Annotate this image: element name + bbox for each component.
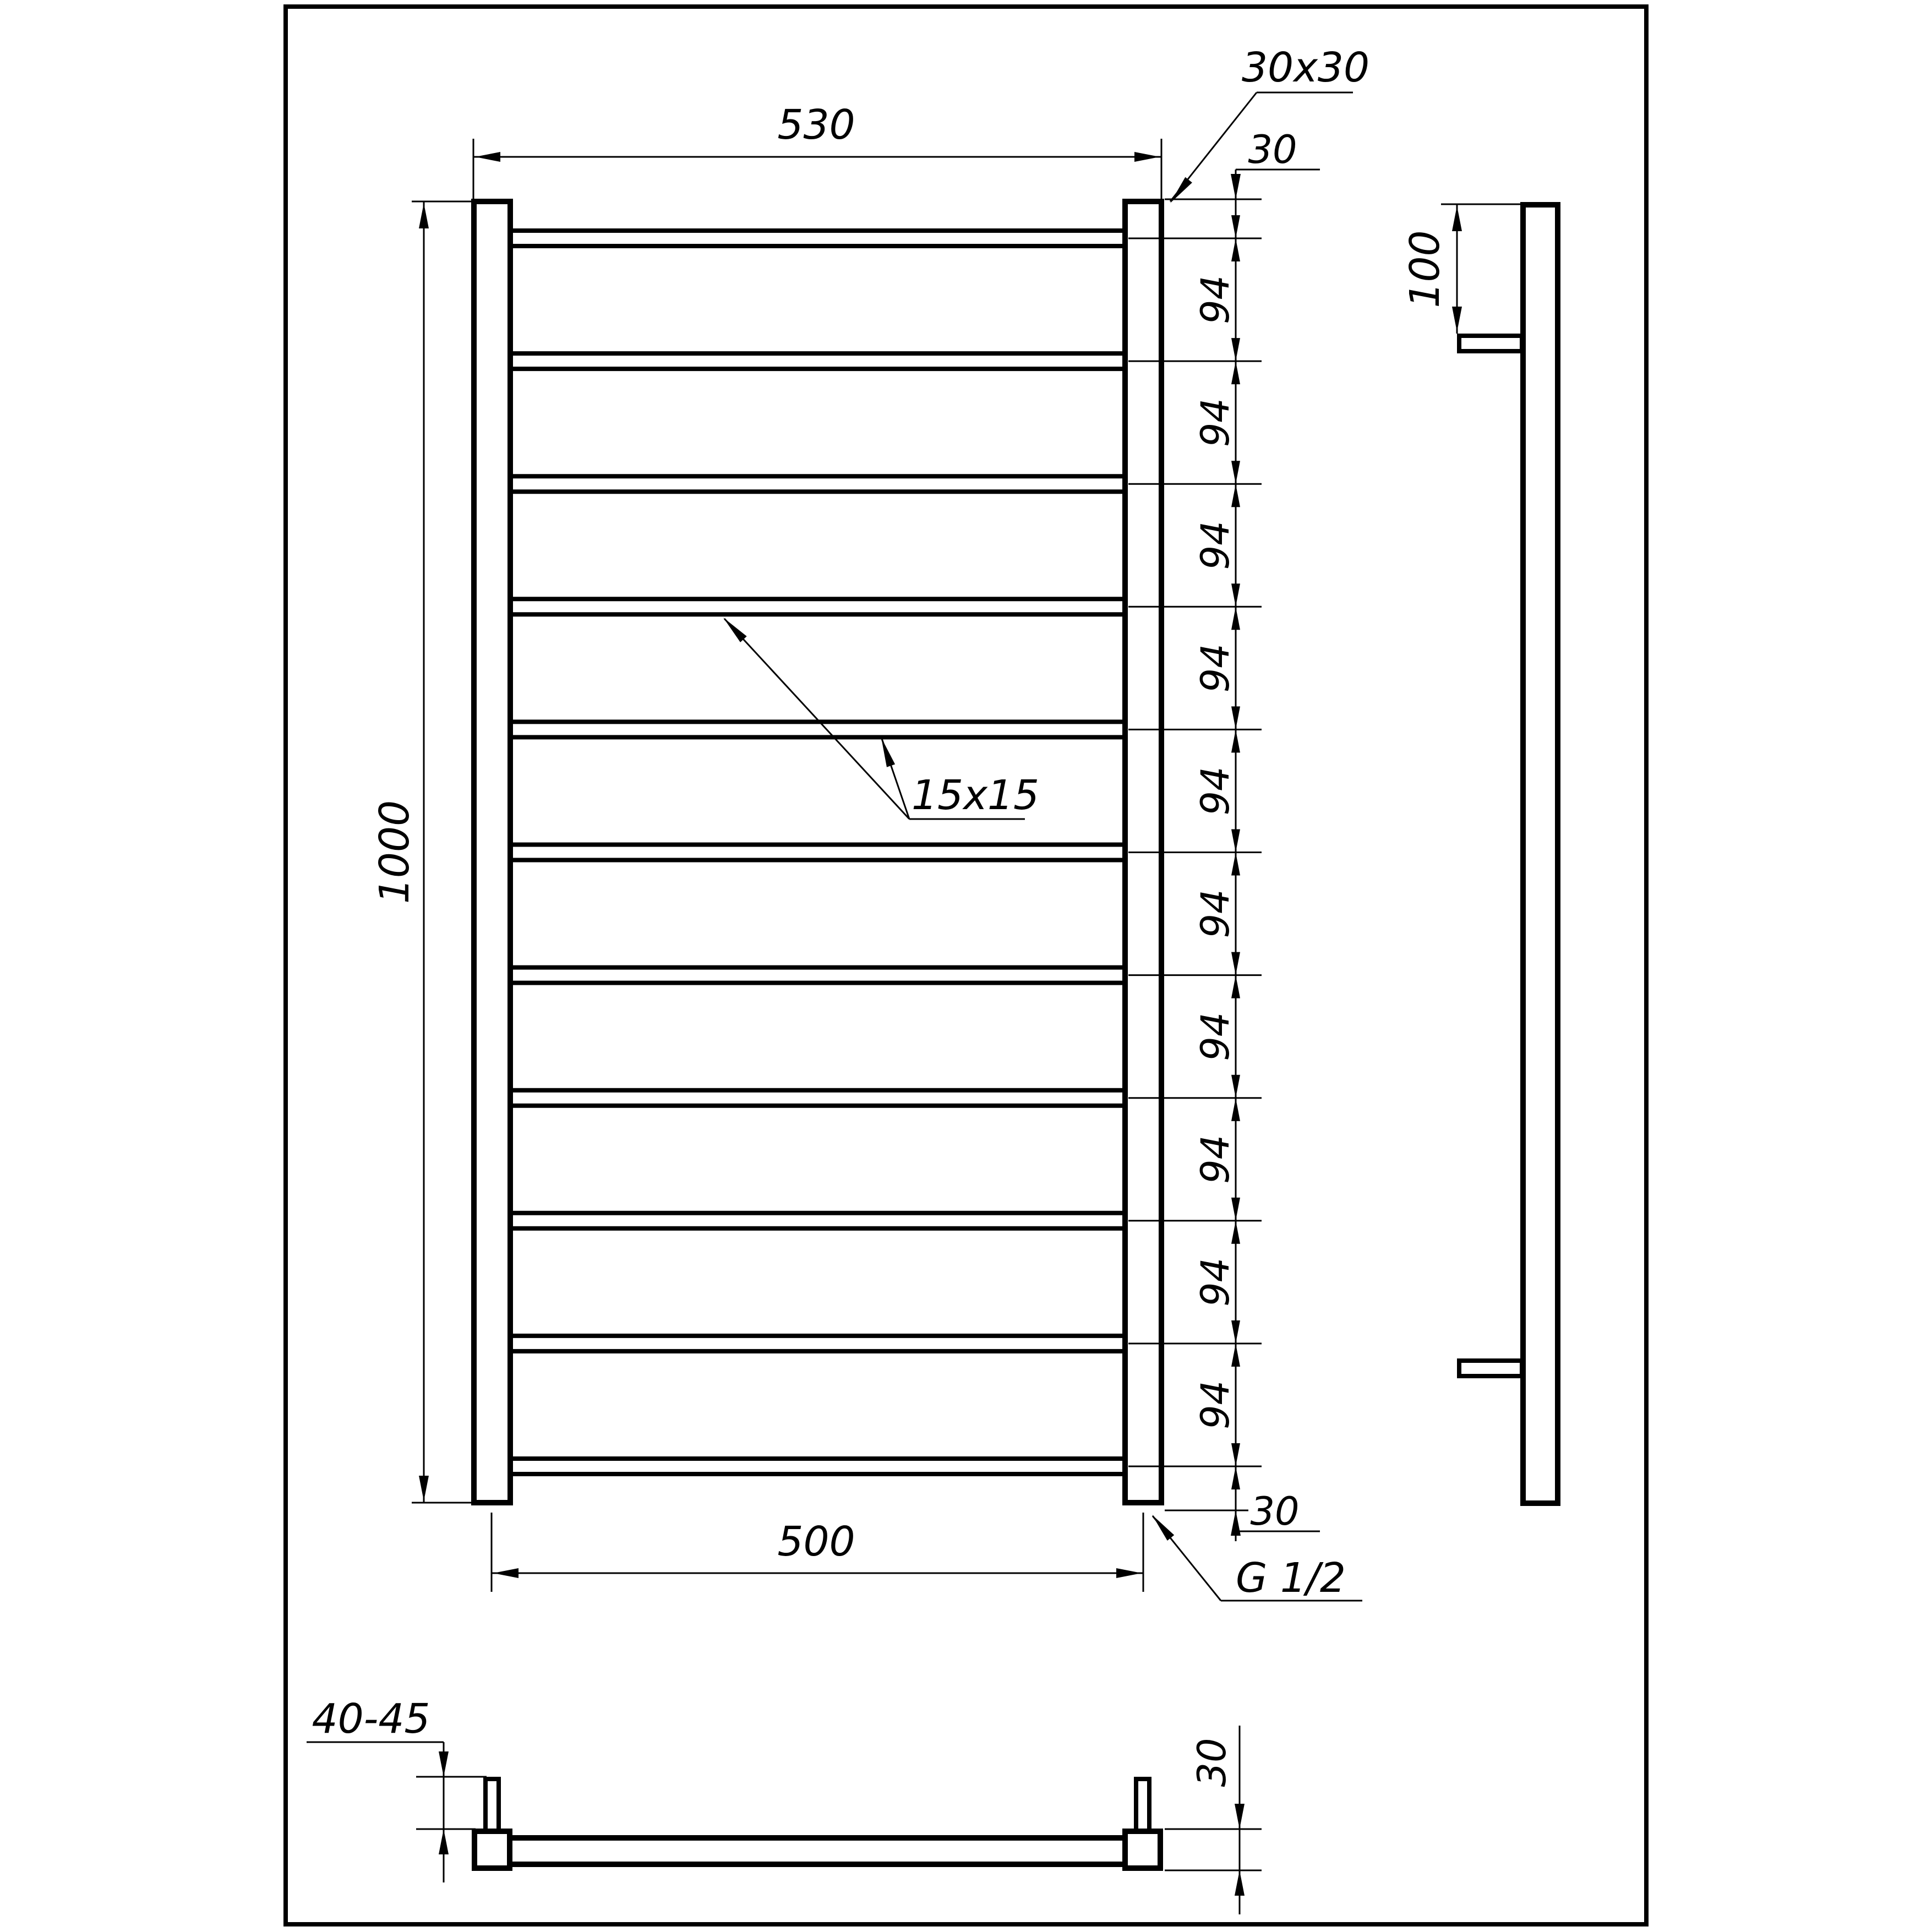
arrowhead	[1231, 461, 1240, 484]
dim-label-1000: 1000	[371, 800, 418, 904]
dim-label-94: 94	[1193, 1380, 1238, 1429]
dim-top-width: 530	[473, 101, 1161, 205]
arrowhead	[1231, 583, 1240, 607]
arrowhead	[1231, 1221, 1240, 1244]
arrowhead	[1231, 952, 1240, 975]
arrowhead	[1231, 174, 1241, 199]
arrowhead	[1231, 1344, 1240, 1367]
dim-label-500: 500	[777, 1518, 855, 1565]
arrowhead	[1231, 238, 1240, 261]
dim-label-94: 94	[1193, 889, 1238, 938]
dim-label-94: 94	[1193, 1258, 1238, 1307]
arrowhead	[1231, 706, 1240, 729]
arrowhead	[1134, 152, 1160, 162]
arrowhead	[1235, 1870, 1245, 1896]
dim-label-15x15: 15x15	[912, 772, 1039, 819]
arrowhead	[1231, 829, 1240, 853]
arrowhead	[419, 203, 429, 228]
dim-bracket-offset: 100	[1401, 204, 1521, 334]
side-rail-tube	[1523, 205, 1558, 1503]
arrowhead	[1231, 1466, 1240, 1489]
arrowhead	[1235, 1804, 1245, 1829]
left-bracket-stem	[485, 1779, 499, 1831]
arrowhead	[1231, 338, 1240, 361]
dim-label-30x30: 30x30	[1242, 44, 1369, 91]
arrowhead	[1231, 1075, 1240, 1098]
dim-label-94: 94	[1193, 521, 1238, 570]
dim-label-94: 94	[1193, 275, 1238, 324]
bottom-wall-bracket	[1459, 1361, 1522, 1376]
leader-arrowhead	[1152, 1515, 1174, 1541]
dim-label-bv-30: 30	[1189, 1738, 1235, 1787]
right-rail-end	[1125, 1831, 1160, 1868]
arrowhead	[1452, 307, 1462, 332]
dim-label-94: 94	[1193, 398, 1238, 447]
arrowhead	[1231, 853, 1240, 876]
leader-rail-section: 30x30	[1170, 44, 1369, 201]
arrowhead	[1231, 607, 1240, 630]
top-wall-bracket	[1459, 336, 1522, 351]
bottom-view: 40-45 30	[307, 1695, 1262, 1914]
arrowhead	[1116, 1568, 1142, 1578]
dim-label-94: 94	[1193, 1012, 1238, 1061]
front-view: 530 1000 94949494949494949494 30 30 30x3…	[371, 44, 1369, 1602]
leader-rung-section: 15x15	[724, 619, 1039, 819]
dim-label-g12: G 1/2	[1236, 1554, 1346, 1602]
arrowhead	[419, 1476, 429, 1501]
towel-rail-technical-drawing: 530 1000 94949494949494949494 30 30 30x3…	[0, 0, 1932, 1932]
dim-label-94: 94	[1193, 766, 1238, 815]
arrowhead	[1231, 215, 1240, 238]
arrowhead	[493, 1568, 519, 1578]
arrowhead	[1231, 1510, 1241, 1536]
dim-label-top-30: 30	[1248, 127, 1297, 172]
dim-label-94: 94	[1193, 643, 1238, 692]
arrowhead	[1231, 1443, 1240, 1466]
arrowhead	[1452, 206, 1462, 231]
right-bracket-stem	[1136, 1779, 1149, 1831]
dim-chain-right: 94949494949494949494 30 30	[1128, 127, 1320, 1541]
dim-label-100: 100	[1401, 230, 1449, 308]
arrowhead	[1231, 361, 1240, 384]
arrowhead	[1231, 1098, 1240, 1121]
arrowhead	[1231, 1320, 1240, 1344]
dim-label-530: 530	[777, 101, 855, 149]
arrowhead	[439, 1829, 449, 1854]
dim-label-94: 94	[1193, 1135, 1238, 1184]
side-view: 100	[1401, 204, 1558, 1503]
chain-extension-lines	[1128, 199, 1262, 1510]
dim-label-40-45: 40-45	[312, 1695, 430, 1743]
dim-tube-size: 30	[1165, 1726, 1262, 1914]
arrowheads	[419, 152, 1462, 1896]
arrowhead	[1231, 1198, 1240, 1221]
dim-bracket-depth: 40-45	[307, 1695, 487, 1882]
dim-bottom-width: 500	[492, 1513, 1143, 1592]
arrowhead	[475, 152, 500, 162]
rungs	[512, 231, 1125, 1474]
left-rail	[474, 201, 510, 1503]
leader-arrowhead	[881, 738, 895, 767]
dim-height: 1000	[371, 201, 472, 1503]
arrowhead	[1231, 484, 1240, 507]
arrowhead	[1231, 975, 1240, 998]
dim-label-bottom-30: 30	[1250, 1489, 1299, 1534]
arrowhead	[1231, 729, 1240, 752]
arrowhead	[439, 1751, 449, 1777]
leader-arrowhead	[723, 618, 747, 642]
leader-line	[724, 619, 909, 819]
left-rail-end	[474, 1831, 510, 1868]
